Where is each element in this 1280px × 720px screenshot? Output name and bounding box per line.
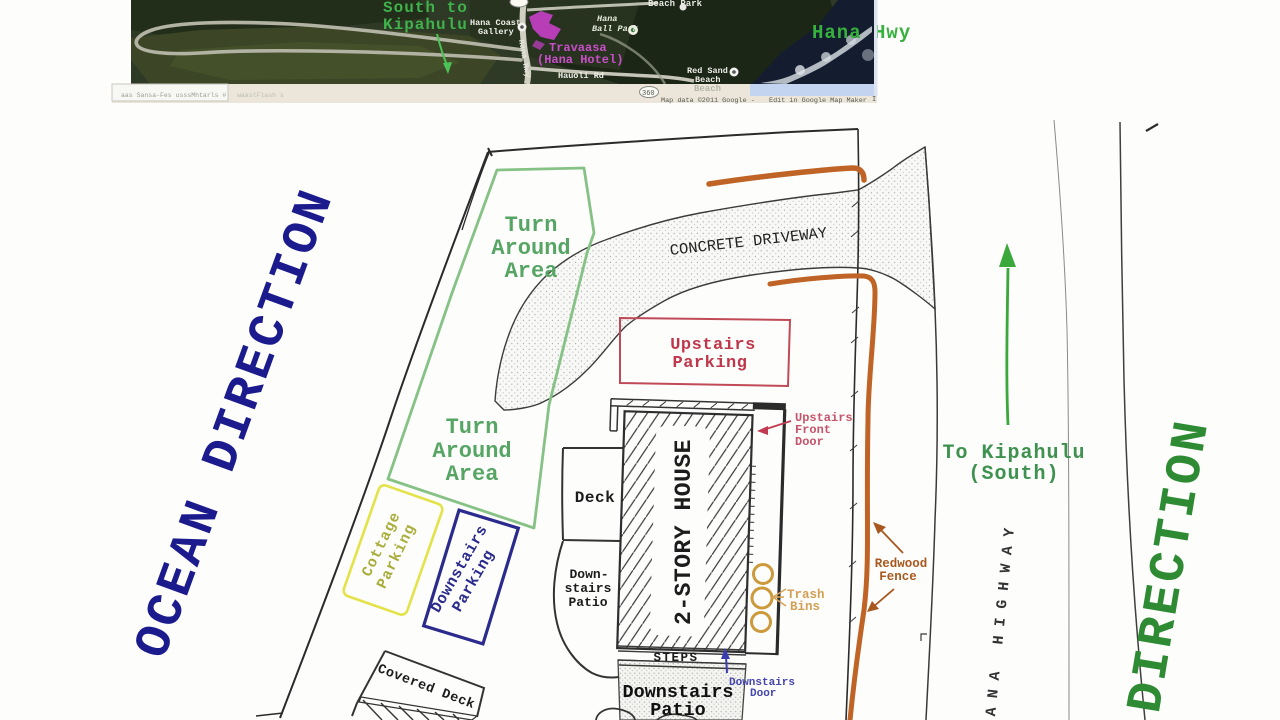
svg-text:Fence: Fence	[879, 570, 917, 584]
svg-text:Redwood: Redwood	[875, 557, 928, 571]
svg-text:Down-: Down-	[569, 567, 608, 582]
svg-text:Hauoli Rd: Hauoli Rd	[558, 71, 604, 81]
svg-text:Beach: Beach	[694, 84, 721, 94]
svg-text:Around: Around	[491, 236, 570, 261]
svg-text:Deck: Deck	[575, 489, 615, 507]
svg-text:STEPS: STEPS	[653, 651, 698, 665]
svg-text:Turn: Turn	[505, 213, 558, 238]
svg-text:I: I	[872, 96, 876, 104]
svg-text:HANA HIGHWAY: HANA HIGHWAY	[981, 518, 1019, 720]
svg-text:Gallery: Gallery	[478, 27, 514, 37]
svg-text:Ball Park: Ball Park	[592, 24, 639, 34]
svg-text:Hana: Hana	[597, 14, 617, 24]
svg-text:aas Sansa-Fes usssMhtarls #: aas Sansa-Fes usssMhtarls #	[121, 92, 226, 99]
svg-text:Turn: Turn	[446, 415, 499, 440]
svg-text:Upstairs: Upstairs	[670, 336, 756, 355]
svg-text:Covered Deck: Covered Deck	[375, 662, 477, 713]
svg-text:OCEAN DIRECTION: OCEAN DIRECTION	[125, 181, 348, 666]
svg-text:(Hana Hotel): (Hana Hotel)	[537, 53, 623, 67]
svg-text:Beach Park: Beach Park	[648, 0, 703, 9]
svg-text:waastFlash s: waastFlash s	[237, 92, 284, 99]
svg-text:360: 360	[642, 90, 655, 98]
svg-text:Hana Hwy: Hana Hwy	[812, 22, 911, 44]
svg-text:Door: Door	[750, 688, 776, 700]
svg-text:Patio: Patio	[650, 700, 706, 720]
svg-text:DIRECTION: DIRECTION	[1118, 415, 1223, 717]
svg-text:stairs: stairs	[565, 581, 612, 596]
svg-text:Around: Around	[432, 439, 511, 464]
svg-text:To Kipahulu: To Kipahulu	[942, 442, 1085, 465]
svg-text:Kipahulu: Kipahulu	[383, 16, 468, 34]
svg-text:South to: South to	[383, 0, 468, 17]
svg-text:Map data ©2011 Google -: Map data ©2011 Google -	[661, 96, 755, 105]
svg-text:Area: Area	[505, 259, 558, 284]
svg-text:Parking: Parking	[673, 354, 748, 373]
svg-text:2-STORY HOUSE: 2-STORY HOUSE	[671, 439, 697, 625]
svg-text:Door: Door	[795, 435, 824, 449]
svg-text:Area: Area	[446, 462, 499, 487]
svg-text:Patio: Patio	[568, 595, 607, 610]
svg-text:Edit in Google Map Maker: Edit in Google Map Maker	[769, 97, 867, 105]
svg-text:Bins: Bins	[790, 600, 820, 614]
svg-text:(South): (South)	[968, 463, 1059, 486]
